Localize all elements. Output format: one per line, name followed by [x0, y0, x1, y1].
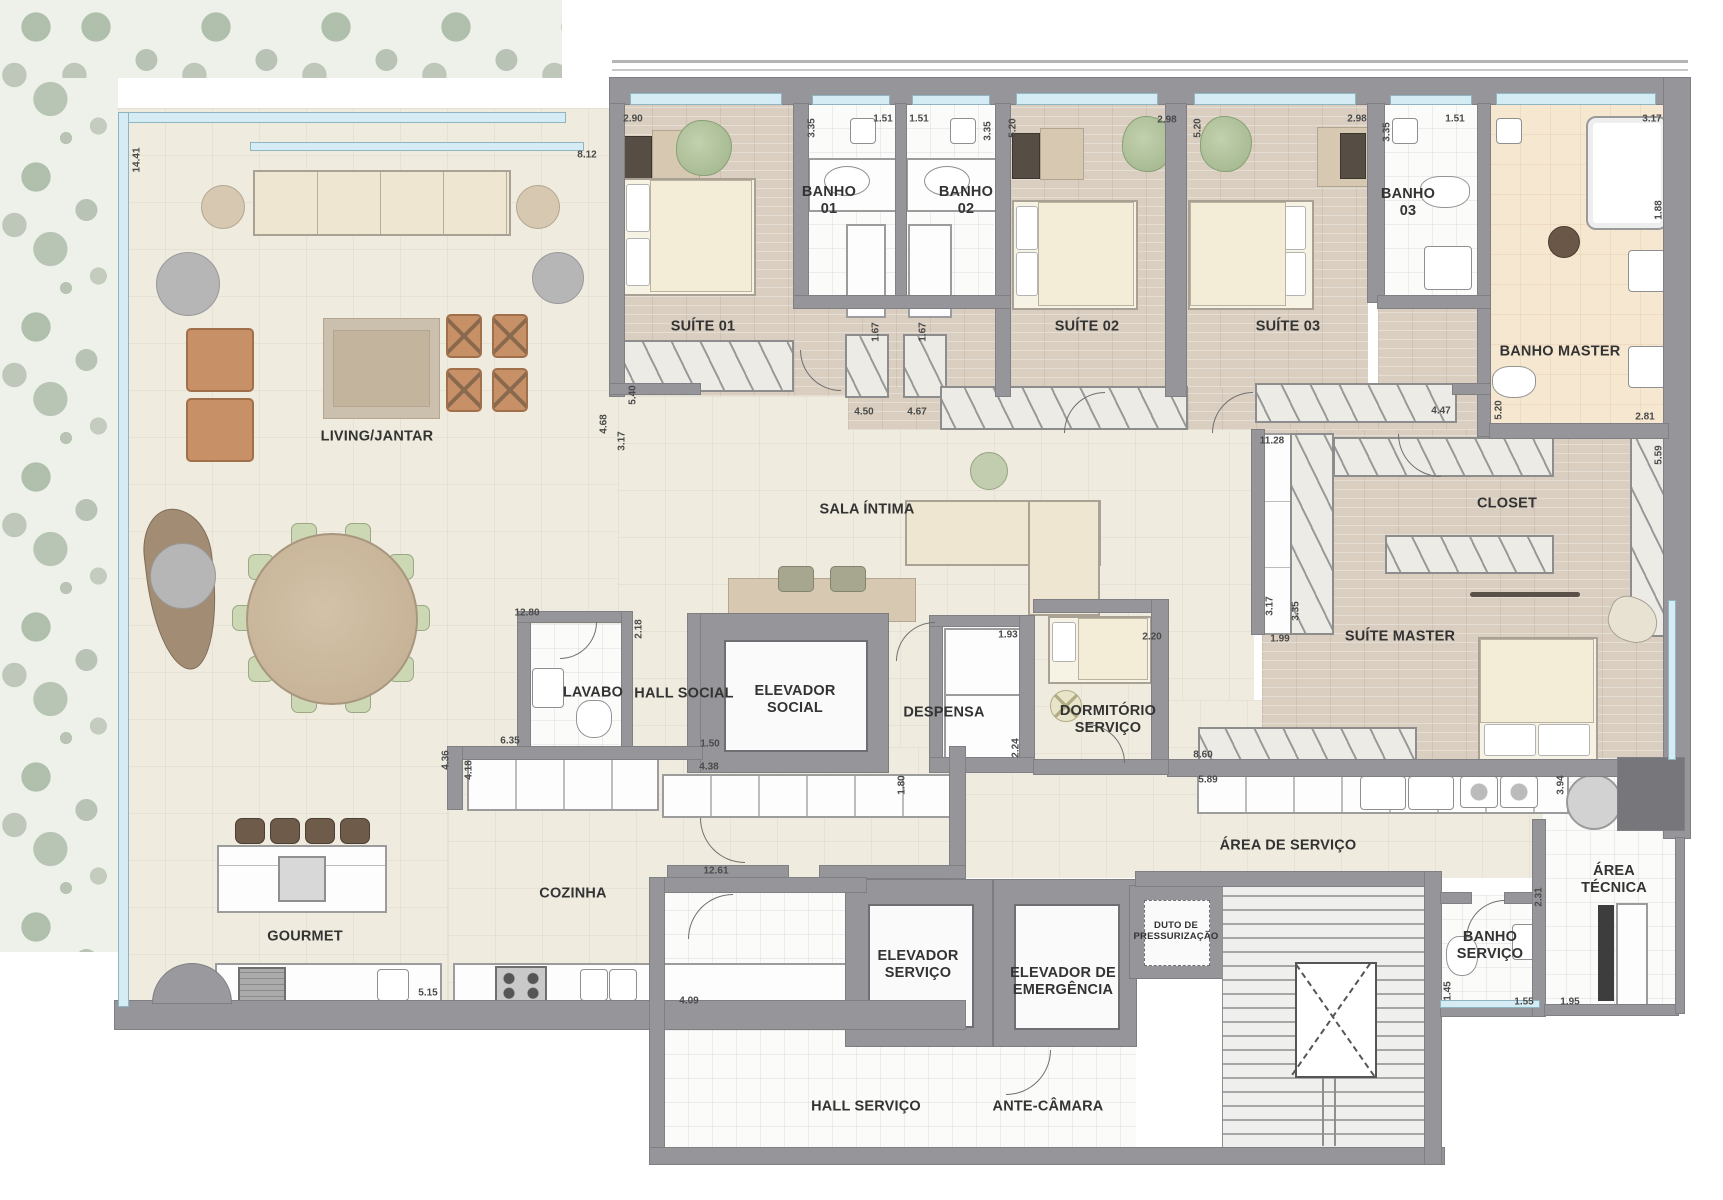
vanity-stool — [1548, 226, 1580, 258]
dimension-40: 4.18 — [464, 760, 475, 779]
sink — [580, 969, 608, 1001]
room-label-dormitorio-servico: DORMITÓRIO SERVIÇO — [1060, 703, 1156, 737]
dimension-20: 4.68 — [599, 414, 610, 433]
dimension-17: 5.40 — [628, 385, 639, 404]
dimension-26: 5.59 — [1654, 445, 1665, 464]
pillow — [1284, 252, 1306, 296]
bar-stool — [305, 818, 335, 844]
wall — [1618, 758, 1684, 830]
dimension-31: 1.93 — [998, 630, 1017, 641]
dimension-27: 3.17 — [1265, 596, 1276, 615]
sink — [377, 969, 409, 1001]
wall — [1453, 384, 1490, 394]
room-label-suite-03: SUÍTE 03 — [1256, 318, 1320, 335]
wall — [1152, 600, 1168, 774]
room-label-suite-master: SUÍTE MASTER — [1345, 628, 1455, 645]
bar-stool — [340, 818, 370, 844]
dimension-50: 1.95 — [1560, 997, 1579, 1008]
dimension-47: 2.31 — [1534, 887, 1545, 906]
window-inner — [250, 142, 584, 151]
dimension-22: 4.47 — [1431, 406, 1450, 417]
pouf — [970, 452, 1008, 490]
armchair — [186, 398, 254, 462]
wall — [610, 104, 624, 396]
room-label-area-tecnica: ÁREA TÉCNICA — [1560, 863, 1669, 897]
technical-equipment — [1616, 903, 1648, 1007]
dimension-28: 3.35 — [1291, 601, 1302, 620]
room-label-banho-master: BANHO MASTER — [1500, 343, 1621, 360]
stair-rail — [1322, 1078, 1324, 1146]
parapet-line — [612, 60, 1688, 63]
stool — [830, 566, 866, 592]
dimension-38: 4.38 — [699, 762, 718, 773]
dimension-25: 5.20 — [1494, 400, 1505, 419]
dimension-42: 5.89 — [1198, 775, 1217, 786]
room-label-elevador-servico: ELEVADOR SERVIÇO — [877, 948, 958, 982]
bar-stool — [235, 818, 265, 844]
cross-stool — [446, 314, 482, 358]
duvet — [1038, 202, 1134, 306]
side-table — [201, 185, 245, 229]
dimension-16: 1.67 — [918, 322, 929, 341]
window-suite-02 — [1016, 93, 1158, 105]
room-label-closet: CLOSET — [1477, 495, 1537, 512]
island-cooktop — [278, 856, 326, 902]
closet-small — [845, 334, 889, 398]
room-label-despensa: DESPENSA — [903, 704, 984, 721]
side-table — [516, 185, 560, 229]
dimension-24: 2.81 — [1635, 412, 1654, 423]
window-banho-03 — [1390, 95, 1472, 105]
wall — [820, 866, 965, 878]
closet-bench — [1470, 592, 1580, 597]
shower-head — [1496, 118, 1522, 144]
wardrobe-cabinet — [1012, 133, 1040, 179]
dimension-21: 3.17 — [617, 431, 628, 450]
stool — [778, 566, 814, 592]
garden-trees-left — [0, 0, 118, 952]
room-label-gourmet: GOURMET — [267, 928, 343, 945]
water-tank — [1566, 774, 1622, 830]
dimension-49: 1.55 — [1514, 997, 1533, 1008]
wall — [1168, 760, 1668, 776]
stair-rail — [1334, 1078, 1336, 1146]
laundry-sink — [1360, 776, 1406, 810]
closet-wardrobe-top — [1333, 437, 1554, 477]
dimension-41: 8.60 — [1193, 750, 1212, 761]
shower-head — [850, 118, 876, 144]
window-suite-03 — [1194, 93, 1356, 105]
shower-head — [1392, 118, 1418, 144]
sala-sofa-chaise — [1028, 500, 1100, 616]
living-sofa — [253, 170, 511, 236]
cooktop — [495, 966, 547, 1005]
sink-cabinet — [1628, 346, 1666, 388]
wall — [650, 878, 664, 1164]
lavabo-sink — [532, 668, 564, 708]
room-label-cozinha: COZINHA — [539, 885, 606, 902]
room-label-elevador-emergencia: ELEVADOR DE EMERGÊNCIA — [1010, 965, 1116, 999]
room-label-banho-02: BANHO 02 — [939, 184, 993, 218]
technical-equipment — [1598, 905, 1614, 1001]
pillow — [1016, 252, 1038, 296]
bar-stool — [270, 818, 300, 844]
wall — [930, 758, 1034, 772]
window-suite-01 — [630, 93, 782, 105]
dimension-8: 2.98 — [1157, 115, 1176, 126]
pillow — [626, 238, 650, 286]
dimension-3: 3.35 — [807, 118, 818, 137]
washer — [1460, 776, 1498, 808]
wall — [1441, 893, 1471, 903]
dimension-36: 6.35 — [500, 736, 519, 747]
pillow — [1538, 724, 1590, 756]
dimension-18: 4.50 — [854, 407, 873, 418]
dimension-29: 1.99 — [1270, 634, 1289, 645]
floor-plan: LIVING/JANTARSUÍTE 01BANHO 01BANHO 02SUÍ… — [0, 0, 1723, 1200]
room-label-lavabo: LAVABO — [563, 684, 623, 701]
dimension-39: 4.36 — [441, 750, 452, 769]
duvet — [1480, 639, 1594, 723]
room-label-duto-pressurizacao: DUTO DE PRESSURIZAÇÃO — [1134, 920, 1219, 942]
pillow — [626, 184, 650, 232]
dimension-6: 3.35 — [983, 121, 994, 140]
dimension-12: 1.51 — [1445, 114, 1464, 125]
wall — [650, 878, 866, 892]
dimension-11: 3.35 — [1382, 122, 1393, 141]
parapet-line — [612, 69, 1688, 71]
sink — [609, 969, 637, 1001]
dryer — [1500, 776, 1538, 808]
wall — [950, 747, 965, 879]
pillow — [1016, 206, 1038, 250]
wall — [1034, 600, 1154, 612]
wardrobe-cabinet — [624, 136, 652, 184]
dimension-44: 4.09 — [679, 996, 698, 1007]
room-label-hall-servico: HALL SERVIÇO — [811, 1098, 921, 1115]
dimension-23: 11.28 — [1260, 436, 1284, 447]
dimension-14: 1.88 — [1654, 200, 1665, 219]
room-label-suite-02: SUÍTE 02 — [1055, 318, 1119, 335]
plant — [676, 120, 732, 176]
wall — [930, 616, 1022, 626]
wall — [1136, 872, 1436, 886]
dimension-13: 3.17 — [1642, 114, 1661, 125]
closet-wardrobe-mid — [1385, 535, 1554, 574]
dimension-10: 2.98 — [1347, 114, 1366, 125]
room-label-banho-servico: BANHO SERVIÇO — [1457, 929, 1523, 963]
window-banho-01 — [812, 95, 890, 105]
wall — [650, 1148, 1444, 1164]
wall — [1378, 296, 1490, 308]
desk — [1040, 128, 1084, 180]
duvet — [1078, 618, 1148, 680]
kitchen-cabinets — [662, 774, 964, 818]
room-label-living-jantar: LIVING/JANTAR — [321, 428, 434, 445]
dimension-33: 2.18 — [634, 619, 645, 638]
toilet — [1492, 366, 1536, 398]
lavabo-toilet — [576, 700, 612, 738]
dimension-32: 12.80 — [514, 608, 539, 619]
dimension-30: 2.20 — [1142, 632, 1161, 643]
wall — [1490, 424, 1668, 438]
sink-cabinet — [1628, 250, 1666, 292]
wardrobe-suite-03 — [1255, 383, 1457, 423]
kitchen-counter-top — [467, 757, 659, 811]
wardrobe-cabinet — [1340, 133, 1366, 179]
dimension-15: 1.67 — [871, 322, 882, 341]
dining-table — [246, 533, 418, 705]
pillow — [1052, 622, 1076, 662]
dimension-43: 12.61 — [703, 866, 728, 877]
dimension-46: 3.94 — [1556, 775, 1567, 794]
dimension-45: 5.15 — [418, 988, 437, 999]
dimension-35: 1.80 — [897, 775, 908, 794]
room-label-hall-social: HALL SOCIAL — [634, 685, 733, 702]
window-banho-master — [1496, 93, 1656, 105]
wall — [1252, 430, 1264, 634]
cross-stool — [446, 368, 482, 412]
dimension-5: 1.51 — [909, 114, 928, 125]
wall — [1425, 872, 1441, 1164]
wall — [794, 296, 1010, 308]
window-top — [118, 112, 566, 123]
wall — [1676, 838, 1684, 1013]
duvet — [1190, 202, 1286, 306]
window-banho-02 — [912, 95, 990, 105]
room-label-sala-intima: SALA ÍNTIMA — [819, 501, 914, 518]
wall — [1020, 616, 1034, 772]
dimension-0: 14.41 — [132, 147, 143, 172]
room-label-banho-03: BANHO 03 — [1381, 186, 1435, 220]
window-suite-master — [1668, 600, 1676, 760]
dimension-4: 1.51 — [873, 114, 892, 125]
dimension-7: 5.20 — [1008, 118, 1019, 137]
dimension-19: 4.67 — [907, 407, 926, 418]
dimension-48: 1.45 — [1443, 981, 1454, 1000]
plant — [1200, 116, 1252, 172]
dimension-9: 5.20 — [1193, 118, 1204, 137]
dimension-2: 2.90 — [623, 114, 642, 125]
dimension-37: 1.50 — [700, 739, 719, 750]
room-label-suite-01: SUÍTE 01 — [671, 318, 735, 335]
wall — [896, 104, 906, 302]
duvet — [650, 180, 752, 292]
round-rug — [150, 543, 216, 609]
cross-stool — [492, 314, 528, 358]
sink-cabinet — [1424, 246, 1472, 290]
wall — [1166, 104, 1186, 396]
cross-stool — [492, 368, 528, 412]
wall — [1533, 820, 1545, 1016]
shower-head — [950, 118, 976, 144]
grill-appliance — [238, 967, 286, 1004]
wall — [456, 747, 702, 759]
wall — [610, 384, 700, 394]
pillow — [1284, 206, 1306, 250]
round-rug — [532, 252, 584, 304]
wall — [115, 1001, 965, 1029]
round-rug — [156, 252, 220, 316]
wall — [996, 104, 1010, 396]
laundry-sink — [1408, 776, 1454, 810]
wall — [518, 612, 530, 746]
pillow — [1484, 724, 1536, 756]
coffee-table-top — [333, 330, 430, 407]
room-label-ante-camara: ANTE-CÂMARA — [993, 1098, 1104, 1115]
dimension-34: 2.24 — [1011, 738, 1022, 757]
dimension-1: 8.12 — [577, 150, 596, 161]
room-label-banho-01: BANHO 01 — [802, 184, 856, 218]
wall — [622, 612, 632, 748]
armchair — [186, 328, 254, 392]
garden-trees-top — [60, 0, 562, 78]
room-label-area-de-servico: ÁREA DE SERVIÇO — [1220, 837, 1357, 854]
window-left — [118, 112, 129, 1007]
room-label-elevador-social: ELEVADOR SOCIAL — [754, 683, 835, 717]
